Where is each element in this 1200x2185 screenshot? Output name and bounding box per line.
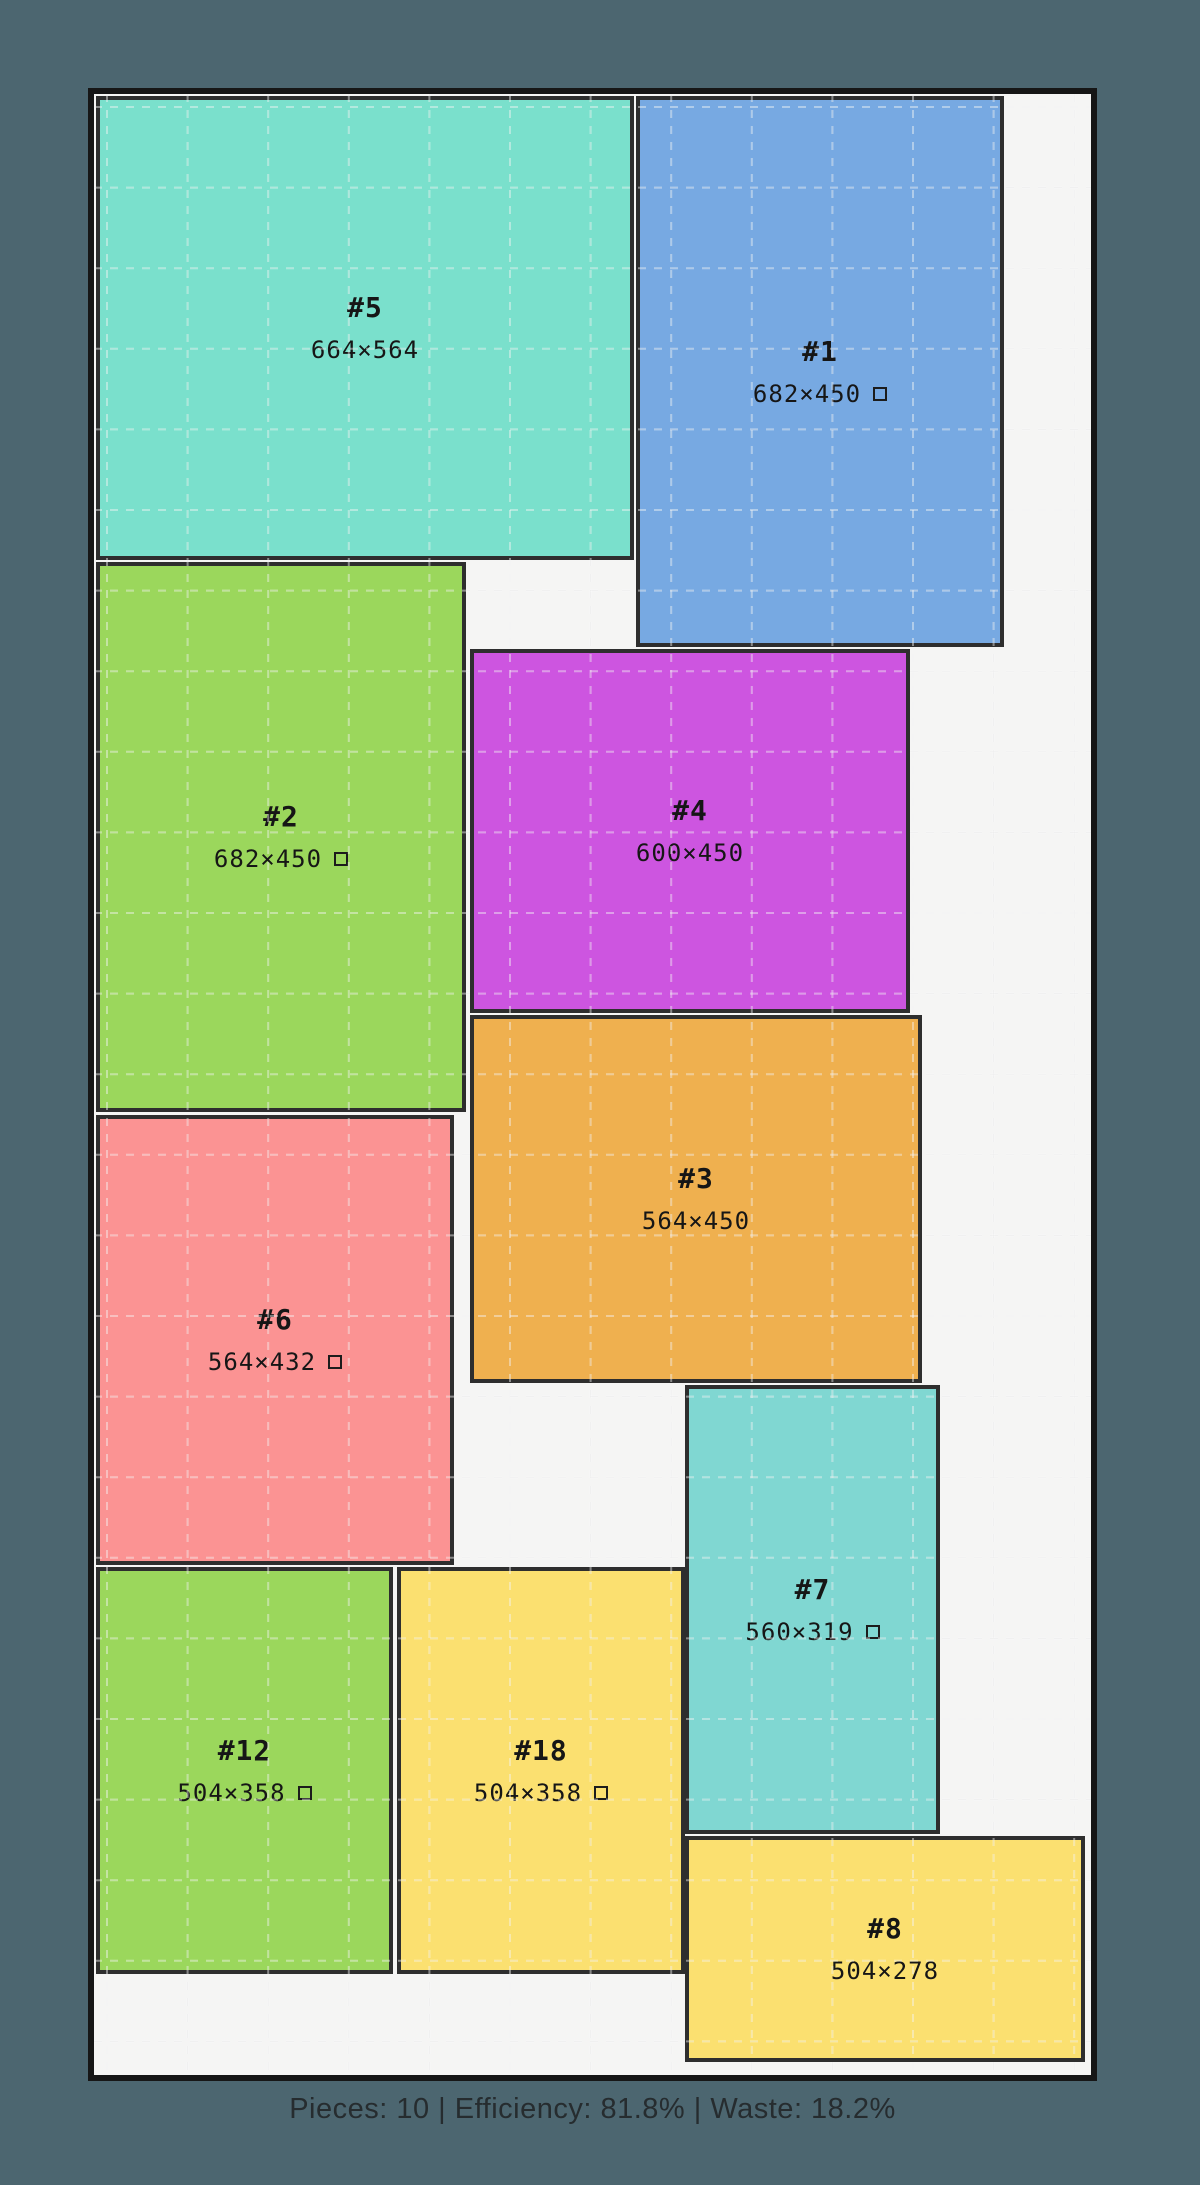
rotation-marker-icon <box>873 387 887 401</box>
piece-6[interactable]: #6564×432 <box>96 1115 454 1565</box>
piece-dims-text: 600×450 <box>636 841 744 865</box>
piece-id-label: #18 <box>514 1737 568 1765</box>
piece-dims-label: 564×450 <box>642 1209 750 1233</box>
page-background: { "scene": { "background_color": "#4c667… <box>0 0 1200 2185</box>
rotation-marker-icon <box>334 852 348 866</box>
piece-7[interactable]: #7560×319 <box>685 1385 940 1834</box>
piece-dims-text: 564×450 <box>642 1209 750 1233</box>
piece-id-label: #2 <box>263 803 299 831</box>
piece-2[interactable]: #2682×450 <box>96 562 466 1112</box>
piece-id-label: #5 <box>347 294 383 322</box>
piece-id-label: #3 <box>678 1165 714 1193</box>
piece-dims-text: 664×564 <box>311 338 419 362</box>
piece-dims-text: 560×319 <box>745 1620 853 1644</box>
piece-dims-text: 564×432 <box>208 1350 316 1374</box>
rotation-marker-icon <box>594 1786 608 1800</box>
piece-dims-text: 682×450 <box>753 382 861 406</box>
piece-18[interactable]: #18504×358 <box>397 1567 685 1974</box>
piece-dims-text: 682×450 <box>214 847 322 871</box>
piece-dims-label: 682×450 <box>753 382 887 406</box>
piece-12[interactable]: #12504×358 <box>96 1567 393 1974</box>
piece-id-label: #8 <box>867 1915 903 1943</box>
piece-dims-text: 504×358 <box>177 1781 285 1805</box>
piece-id-label: #7 <box>795 1576 831 1604</box>
piece-id-label: #4 <box>672 797 708 825</box>
piece-dims-text: 504×278 <box>831 1959 939 1983</box>
piece-dims-label: 504×358 <box>177 1781 311 1805</box>
piece-dims-label: 682×450 <box>214 847 348 871</box>
piece-dims-label: 504×278 <box>831 1959 939 1983</box>
status-bar: Pieces: 10 | Efficiency: 81.8% | Waste: … <box>88 2093 1097 2126</box>
piece-5[interactable]: #5664×564 <box>96 96 634 560</box>
piece-8[interactable]: #8504×278 <box>685 1836 1085 2062</box>
piece-id-label: #6 <box>257 1306 293 1334</box>
piece-dims-text: 504×358 <box>474 1781 582 1805</box>
rotation-marker-icon <box>328 1355 342 1369</box>
piece-id-label: #1 <box>802 338 838 366</box>
piece-id-label: #12 <box>218 1737 272 1765</box>
piece-dims-label: 600×450 <box>636 841 744 865</box>
piece-dims-label: 564×432 <box>208 1350 342 1374</box>
piece-dims-label: 664×564 <box>311 338 419 362</box>
rotation-marker-icon <box>298 1786 312 1800</box>
rotation-marker-icon <box>866 1625 880 1639</box>
piece-3[interactable]: #3564×450 <box>470 1015 922 1383</box>
piece-dims-label: 504×358 <box>474 1781 608 1805</box>
piece-1[interactable]: #1682×450 <box>636 96 1004 647</box>
piece-4[interactable]: #4600×450 <box>470 649 910 1013</box>
piece-dims-label: 560×319 <box>745 1620 879 1644</box>
